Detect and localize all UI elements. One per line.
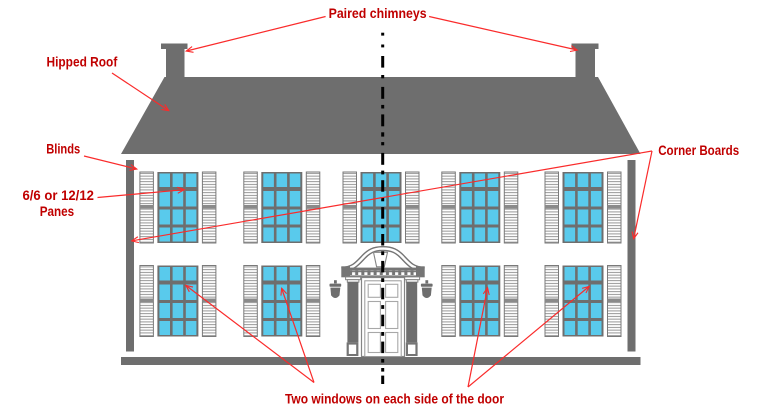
svg-text:Corner Boards: Corner Boards	[658, 142, 739, 158]
svg-text:Hipped Roof: Hipped Roof	[47, 53, 118, 69]
svg-text:Blinds: Blinds	[46, 141, 80, 157]
svg-text:6/6 or 12/12: 6/6 or 12/12	[23, 187, 95, 203]
svg-text:Paired chimneys: Paired chimneys	[329, 5, 427, 21]
svg-text:Two windows on each side of th: Two windows on each side of the door	[285, 391, 504, 407]
svg-text:Panes: Panes	[40, 203, 75, 219]
